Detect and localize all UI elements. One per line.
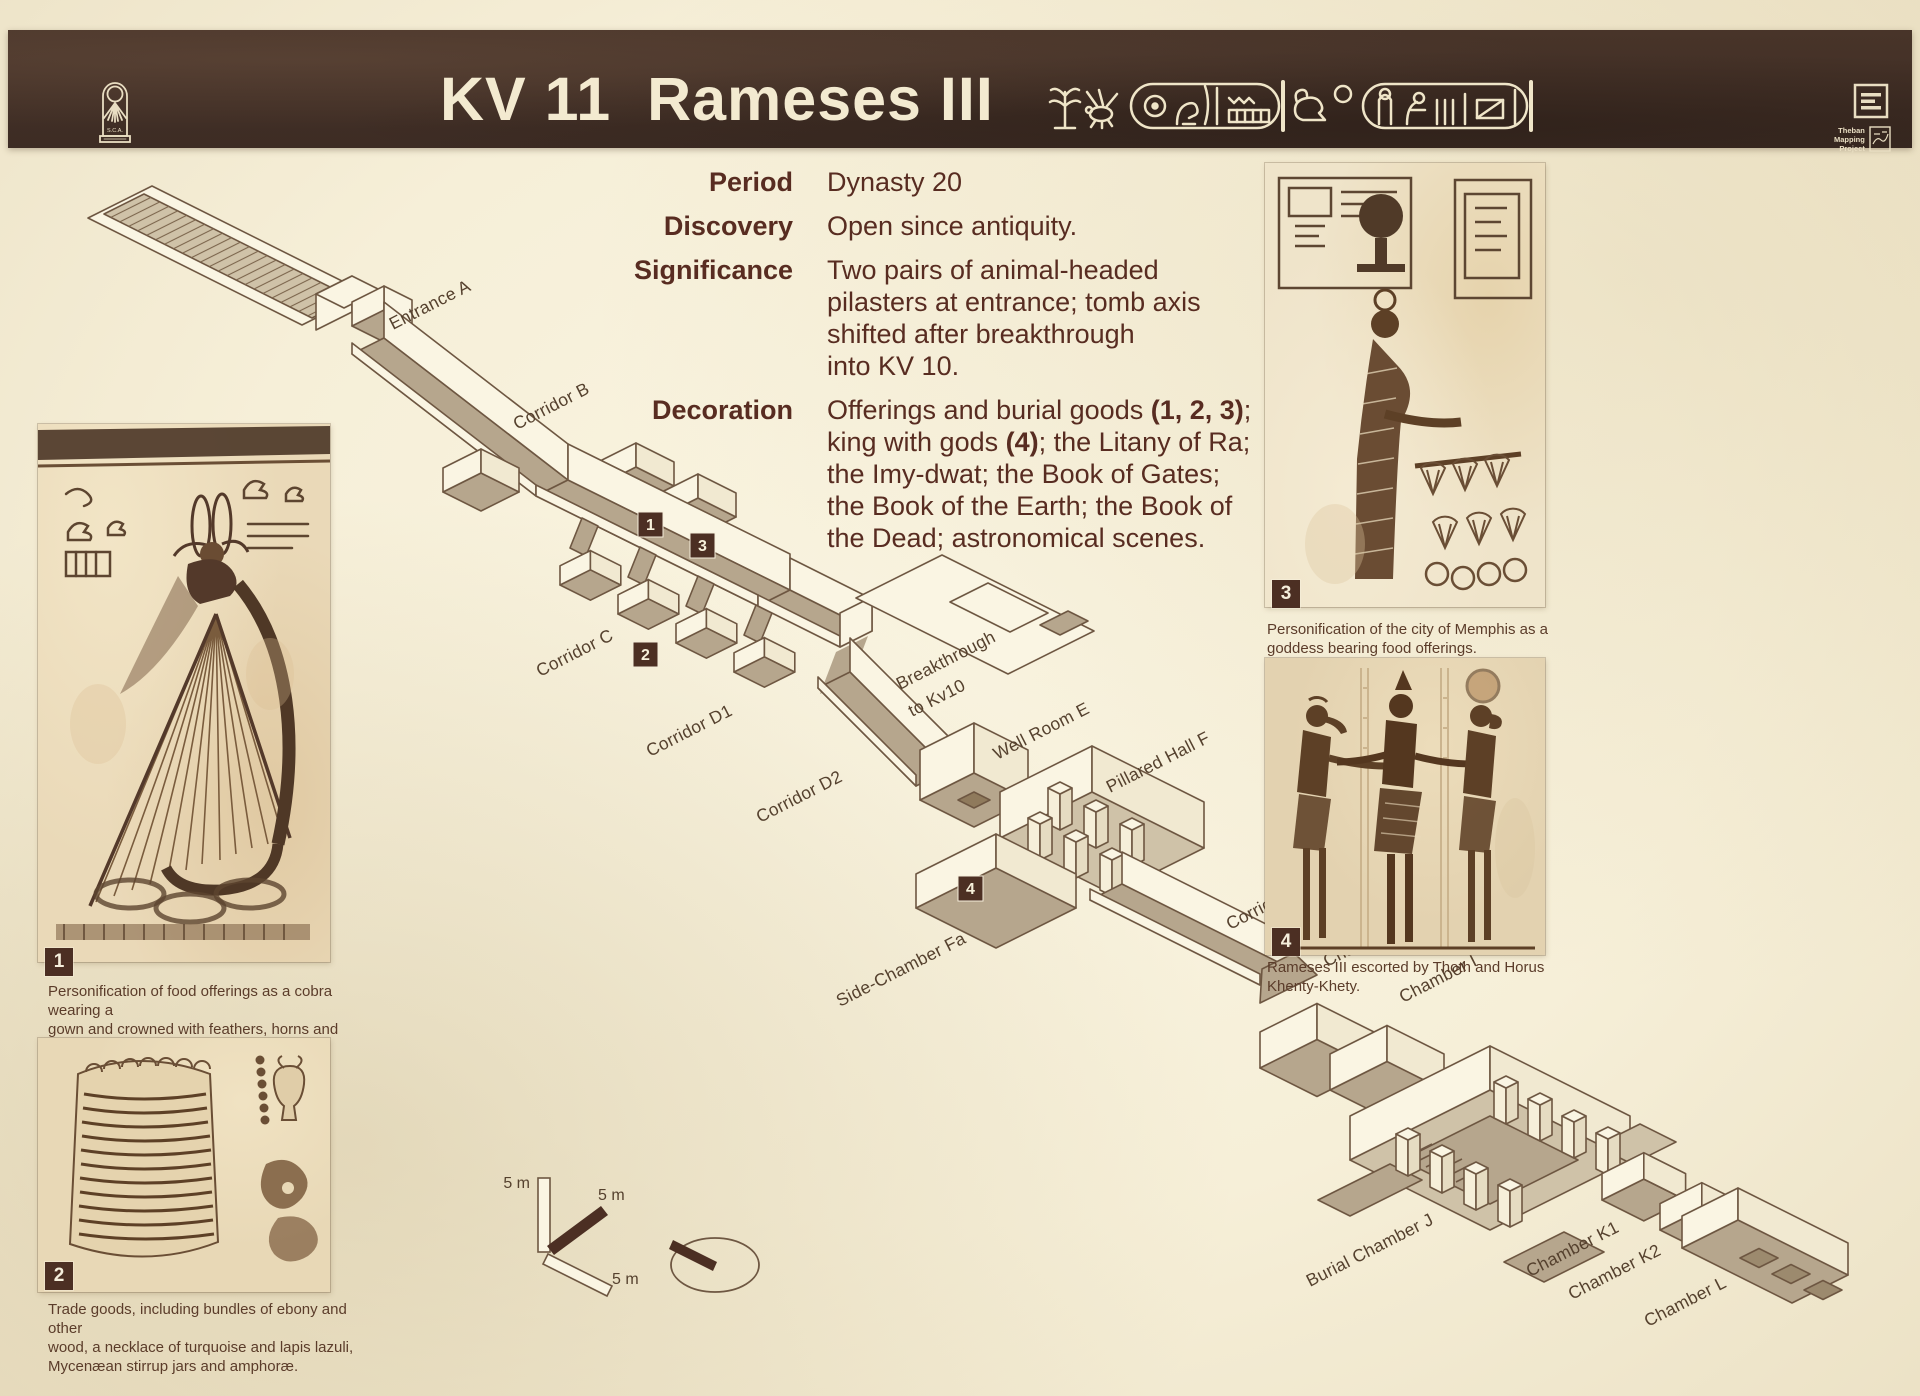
diagram-label-corridor-d1: Corridor D1 <box>643 700 736 760</box>
svg-text:1: 1 <box>646 517 655 534</box>
diagram-label-chamber-l: Chamber L <box>1641 1272 1730 1330</box>
trade-goods-painting-icon <box>38 1038 330 1292</box>
diagram-marker-2: 2 <box>633 642 658 667</box>
figure-photo-4: 4 <box>1265 658 1545 955</box>
scale-label-lower: 5 m <box>612 1271 639 1288</box>
diagram-label-burial-chamber-j: Burial Chamber J <box>1303 1209 1437 1290</box>
cobra-goddess-painting-icon <box>38 424 330 962</box>
diagram-marker-4: 4 <box>958 876 983 901</box>
figure-badge-2: 2 <box>45 1262 73 1290</box>
diagram-label-side-chamber-fa: Side-Chamber Fa <box>833 928 969 1011</box>
scale-label-vertical: 5 m <box>503 1175 530 1192</box>
figure-caption-2: Trade goods, including bundles of ebony … <box>48 1300 358 1376</box>
figure-photo-3: 3 <box>1265 163 1545 607</box>
tomb-sign-kv11: KV 11 Rameses III S.C.A. <box>0 0 1920 1396</box>
figure-badge-3: 3 <box>1272 580 1300 608</box>
figure-badge-1: 1 <box>45 948 73 976</box>
tomb-structure <box>88 186 1848 1303</box>
figure-photo-1: 1 <box>38 424 330 962</box>
svg-text:3: 3 <box>698 538 707 555</box>
rameses-thoth-horus-painting-icon <box>1265 658 1545 955</box>
svg-text:2: 2 <box>641 647 650 664</box>
diagram-marker-1: 1 <box>638 512 663 537</box>
diagram-label-corridor-b: Corridor B <box>510 378 593 433</box>
figure-badge-4: 4 <box>1272 928 1300 956</box>
figure-photo-2: 2 <box>38 1038 330 1292</box>
diagram-label-corridor-d2: Corridor D2 <box>753 766 846 826</box>
scale-label-upper: 5 m <box>598 1187 625 1204</box>
scale-bars: 5 m 5 m 5 m <box>503 1175 638 1296</box>
diagram-marker-3: 3 <box>690 533 715 558</box>
figure-caption-3: Personification of the city of Memphis a… <box>1267 620 1557 658</box>
memphis-goddess-painting-icon <box>1265 163 1545 607</box>
orientation-compass-ellipse-icon <box>669 1238 759 1292</box>
svg-text:4: 4 <box>966 881 975 898</box>
diagram-label-corridor-c: Corridor C <box>533 625 617 681</box>
figure-caption-4: Rameses III escorted by Thoth and Horus … <box>1267 958 1567 996</box>
